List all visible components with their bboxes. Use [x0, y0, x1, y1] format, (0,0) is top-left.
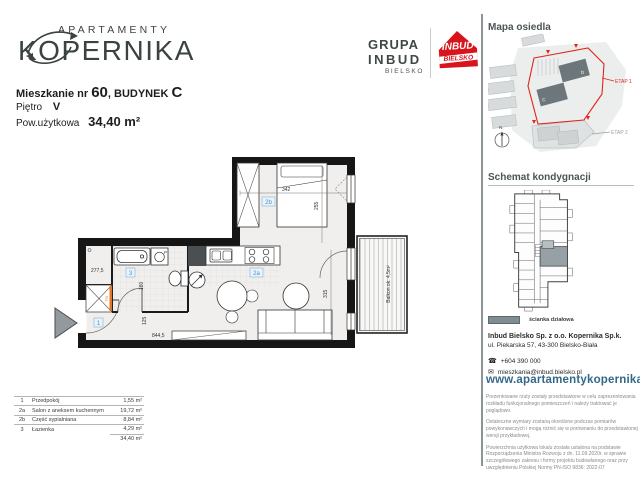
table-row: 3 Łazienka 4,29 m²	[14, 425, 144, 434]
dim-844: 844,5	[152, 333, 165, 339]
dim-125: 125	[142, 316, 148, 325]
floor-label: Piętro	[16, 102, 42, 113]
unit-title: Mieszkanie nr 60, BUDYNEK C	[16, 84, 182, 101]
vent-icon	[189, 272, 205, 288]
shaft	[188, 246, 206, 266]
etap1-label: ETAP 1	[615, 79, 632, 85]
room2b-label: 2b	[265, 200, 272, 206]
floor-schematic	[497, 190, 591, 313]
grupa-line1: GRUPA	[368, 38, 424, 51]
window-bottom	[347, 313, 356, 330]
grupa-line3: BIELSKO	[368, 69, 424, 76]
unit-label: Mieszkanie nr	[16, 88, 88, 100]
partition-wall-swatch	[488, 316, 520, 324]
room2a-label: 2a	[253, 271, 260, 277]
logo-divider	[430, 28, 431, 78]
dim-255: 255	[314, 201, 320, 210]
area-label: Pow.użytkowa	[16, 118, 79, 129]
row-area: 19,72 m²	[110, 406, 144, 415]
contact-block: Inbud Bielsko Sp. z o.o. Kopernika Sp.k.…	[488, 333, 638, 376]
row-no: 2b	[14, 415, 30, 424]
dim-180: 180	[139, 281, 145, 290]
company-name: Inbud Bielsko Sp. z o.o. Kopernika Sp.k.	[488, 333, 638, 340]
table-row: 2a Salon z aneksem kuchennym 19,72 m²	[14, 406, 144, 415]
table-total-row: 34,40 m²	[14, 434, 144, 443]
table-row: 2b Część sypialniana 8,84 m²	[14, 415, 144, 424]
balcony-label: Balkon ok. 4,5m²	[386, 265, 392, 303]
sofa	[258, 310, 332, 340]
legend: ścianka działowa	[488, 316, 634, 324]
unit-number: 60	[91, 84, 108, 101]
logo-main-text: KOPERNIKA	[18, 35, 195, 66]
company-address: ul. Piekarska 57, 43-300 Bielsko-Biała	[488, 342, 638, 349]
row-no: 3	[14, 425, 30, 434]
row-name: Salon z aneksem kuchennym	[30, 406, 110, 415]
row-name: Przedpokój	[30, 397, 110, 406]
row-no: 2a	[14, 406, 30, 415]
kitchen-counter	[206, 246, 280, 265]
panel-divider	[481, 14, 483, 466]
disclaimer-block: Prezentowane rzuty zostały przedstawione…	[486, 394, 638, 477]
estate-map: D C ETAP 1 ETAP 2 N	[488, 34, 636, 160]
phone-number: +604 390 000	[501, 358, 541, 365]
phone-icon: ☎	[488, 357, 497, 365]
dim-342: 342	[282, 187, 291, 193]
bedroom-wardrobe	[237, 163, 259, 227]
schemat-underline	[488, 185, 634, 186]
row-name: Łazienka	[30, 425, 110, 434]
building-value: C	[171, 84, 182, 101]
schemat-title: Schemat kondygnacji	[488, 172, 591, 183]
grupa-inbud-logo: GRUPA INBUD BIELSKO	[368, 38, 424, 76]
floor-value: V	[53, 101, 60, 113]
row-name: Część sypialniana	[30, 415, 110, 424]
compass-icon: N	[495, 125, 509, 147]
etap2-label: ETAP 2	[611, 130, 628, 136]
room-area-table: 1 Przedpokój 1,55 m² 2a Salon z aneksem …	[14, 396, 144, 443]
area-value: 34,40 m²	[88, 114, 140, 129]
floor-line: Piętro V	[16, 101, 60, 113]
row-area: 1,55 m²	[110, 397, 144, 406]
bathtub	[114, 248, 150, 265]
table-row: 1 Przedpokój 1,55 m²	[14, 397, 144, 406]
balcony: Balkon ok. 4,5m²	[357, 236, 407, 333]
row-area: 4,29 m²	[110, 425, 144, 434]
washer-label: P	[164, 250, 167, 255]
building-label: , BUDYNEK	[108, 88, 169, 100]
grupa-line2: INBUD	[368, 53, 424, 66]
kopernika-logo: APARTAMENTY KOPERNIKA	[16, 12, 201, 74]
hall-wardrobe: TM	[86, 285, 112, 312]
bed	[277, 163, 327, 227]
floor-plan: Balkon ok. 4,5m²	[30, 150, 475, 355]
disclaimer-p2: Ostateczne wymiary zostaną określone pod…	[486, 419, 638, 439]
wardrobe-tm-label: TM	[104, 296, 109, 302]
entrance-arrow-icon	[55, 308, 77, 338]
disclaimer-p1: Prezentowane rzuty zostały przedstawione…	[486, 394, 638, 414]
area-line: Pow.użytkowa 34,40 m²	[16, 114, 140, 129]
legend-label: ścianka działowa	[529, 317, 574, 323]
map-title: Mapa osiedla	[488, 22, 551, 33]
toilet	[169, 271, 188, 286]
armchair	[283, 283, 309, 309]
compass-n-label: N	[499, 125, 502, 130]
dim-315: 315	[323, 289, 329, 298]
total-area: 34,40 m²	[110, 434, 144, 443]
row-no: 1	[14, 397, 30, 406]
sideboard	[172, 331, 246, 340]
washing-machine: P	[151, 248, 168, 265]
disclaimer-p3: Powierzchnia użytkowa lokalu została ust…	[486, 445, 638, 472]
inbud-house-logo: INBUD BIELSKO	[437, 27, 479, 77]
dim-277: 277,5	[91, 268, 104, 274]
website-url: www.apartamentykopernika.pl	[486, 374, 640, 386]
inbud-logo-top: INBUD	[442, 40, 474, 53]
flyer-page: APARTAMENTY KOPERNIKA Mieszkanie nr 60, …	[0, 0, 640, 480]
row-area: 8,84 m²	[110, 415, 144, 424]
